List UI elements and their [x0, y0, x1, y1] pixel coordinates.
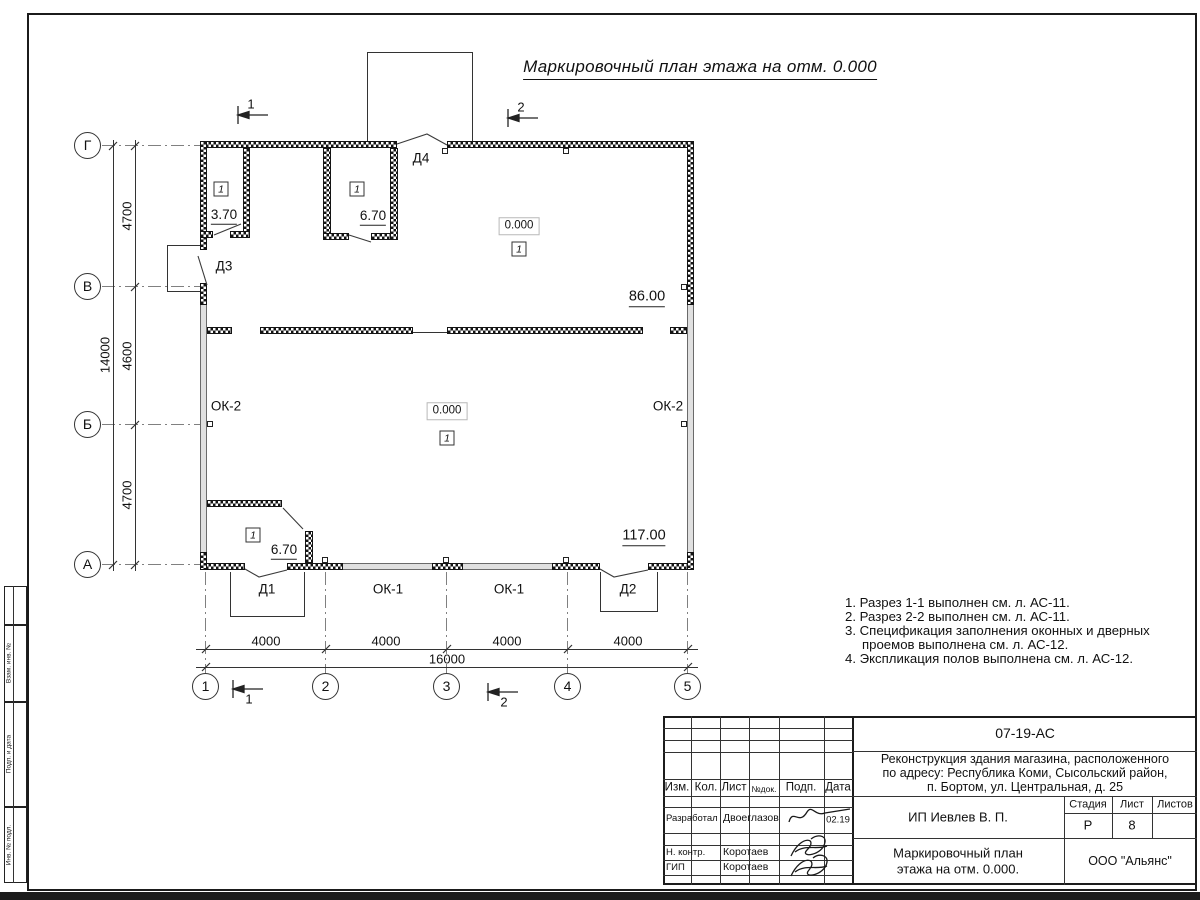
note-line: 4. Экспликация полов выполнена см. л. АС…	[845, 652, 1133, 665]
stamp-line	[853, 838, 1197, 839]
stamp-name: Двоеглазов	[723, 813, 779, 824]
stamp-sheet-value: 8	[1128, 819, 1135, 832]
dimension-value: 4000	[252, 635, 281, 648]
door-label: Д1	[259, 582, 276, 596]
door-swing-lines	[198, 134, 648, 577]
floor-type-mark: 1	[246, 528, 261, 543]
stamp-stage-value: Р	[1084, 819, 1093, 832]
stamp-line	[663, 752, 853, 753]
section-mark-label: 1	[247, 98, 254, 111]
section-mark-label: 2	[500, 696, 507, 709]
axis-bubble: 3	[433, 673, 460, 700]
stamp-line	[1064, 796, 1065, 885]
stamp-project-line: Реконструкция здания магазина, расположе…	[881, 753, 1169, 766]
stamp-sheets-label: Листов	[1157, 800, 1193, 811]
stamp-name: Коротаев	[723, 862, 768, 873]
window-label: ОК-1	[494, 582, 524, 596]
stamp-project-line: по адресу: Республика Коми, Сысольский р…	[883, 767, 1168, 780]
dimension-value: 4600	[121, 342, 134, 371]
stamp-project-line: п. Бортом, ул. Центральная, д. 25	[927, 781, 1123, 794]
dimension-value: 4700	[121, 202, 134, 231]
stamp-client: ИП Иевлев В. П.	[908, 811, 1008, 824]
stamp-line	[663, 740, 853, 741]
axis-bubble: Г	[74, 132, 101, 159]
door-label: Д2	[620, 582, 637, 596]
dimension-value: 4000	[372, 635, 401, 648]
floor-type-mark: 1	[350, 182, 365, 197]
stamp-col-header: Лист	[722, 782, 747, 794]
floor-type-mark: 1	[512, 242, 527, 257]
elevation-mark: 0.000	[427, 402, 468, 420]
section-mark-label: 2	[517, 101, 524, 114]
signature-razrabotal	[789, 809, 850, 822]
axis-bubble: 4	[554, 673, 581, 700]
door-label: Д4	[413, 151, 430, 165]
room-area-label: 117.00	[622, 528, 665, 546]
dimension-value: 4000	[614, 635, 643, 648]
section-mark-label: 1	[245, 693, 252, 706]
stamp-sheet-label: Лист	[1120, 800, 1144, 811]
note-line: проемов выполнена см. л. АС-12.	[862, 638, 1068, 651]
axis-bubble: Б	[74, 411, 101, 438]
section-marks	[233, 106, 538, 701]
floor-type-mark: 1	[440, 431, 455, 446]
stamp-doc-code: 07-19-АС	[995, 726, 1055, 740]
stamp-company: ООО "Альянс"	[1088, 855, 1172, 868]
stamp-drawing-title: Маркировочный план	[893, 847, 1023, 860]
stamp-drawing-title: этажа на отм. 0.000.	[897, 863, 1019, 876]
stamp-col-header: Подп.	[786, 782, 817, 794]
stamp-line	[663, 779, 853, 780]
note-line: 1. Разрез 1-1 выполнен см. л. АС-11.	[845, 596, 1070, 609]
elevation-mark: 0.000	[499, 217, 540, 235]
stamp-stage-label: Стадия	[1069, 800, 1107, 811]
axis-bubble: В	[74, 273, 101, 300]
signatures	[779, 800, 853, 885]
axis-bubble: 2	[312, 673, 339, 700]
stamp-role: Н. контр.	[666, 848, 705, 858]
stamp-role: ГИП	[666, 863, 685, 873]
signature-nkontr	[791, 836, 827, 856]
note-line: 2. Разрез 2-2 выполнен см. л. АС-11.	[845, 610, 1070, 623]
window-label: ОК-2	[211, 399, 241, 413]
dimension-value: 16000	[429, 653, 465, 666]
stamp-line	[1112, 796, 1113, 838]
axis-bubble: 1	[192, 673, 219, 700]
stamp-col-header: Дата	[825, 782, 850, 794]
dimension-value: 14000	[99, 337, 112, 373]
stamp-line	[1152, 796, 1153, 838]
stamp-col-header: №док.	[752, 785, 777, 794]
dimension-value: 4000	[493, 635, 522, 648]
door-label: Д3	[216, 259, 233, 273]
note-line: 3. Спецификация заполнения оконных и две…	[845, 624, 1150, 637]
stamp-col-header: Изм.	[665, 782, 690, 794]
room-area-label: 86.00	[629, 289, 665, 307]
signature-gip	[791, 855, 827, 876]
axis-bubble: 5	[674, 673, 701, 700]
room-area-label: 6.70	[360, 209, 386, 226]
axis-bubble: А	[74, 551, 101, 578]
room-area-label: 6.70	[271, 543, 297, 560]
stamp-line	[1064, 813, 1197, 814]
stamp-col-header: Кол.	[695, 782, 718, 794]
stamp-line	[663, 728, 853, 729]
floor-type-mark: 1	[214, 182, 229, 197]
window-label: ОК-2	[653, 399, 683, 413]
room-area-label: 3.70	[211, 208, 237, 225]
stamp-line	[663, 796, 1197, 797]
stamp-role: Разработал	[666, 814, 718, 824]
drawing-sheet: Взам. инв. № Подп. и дата Инв. № подл. М…	[0, 0, 1200, 900]
dimension-value: 4700	[121, 481, 134, 510]
stamp-name: Коротаев	[723, 847, 768, 858]
window-label: ОК-1	[373, 582, 403, 596]
